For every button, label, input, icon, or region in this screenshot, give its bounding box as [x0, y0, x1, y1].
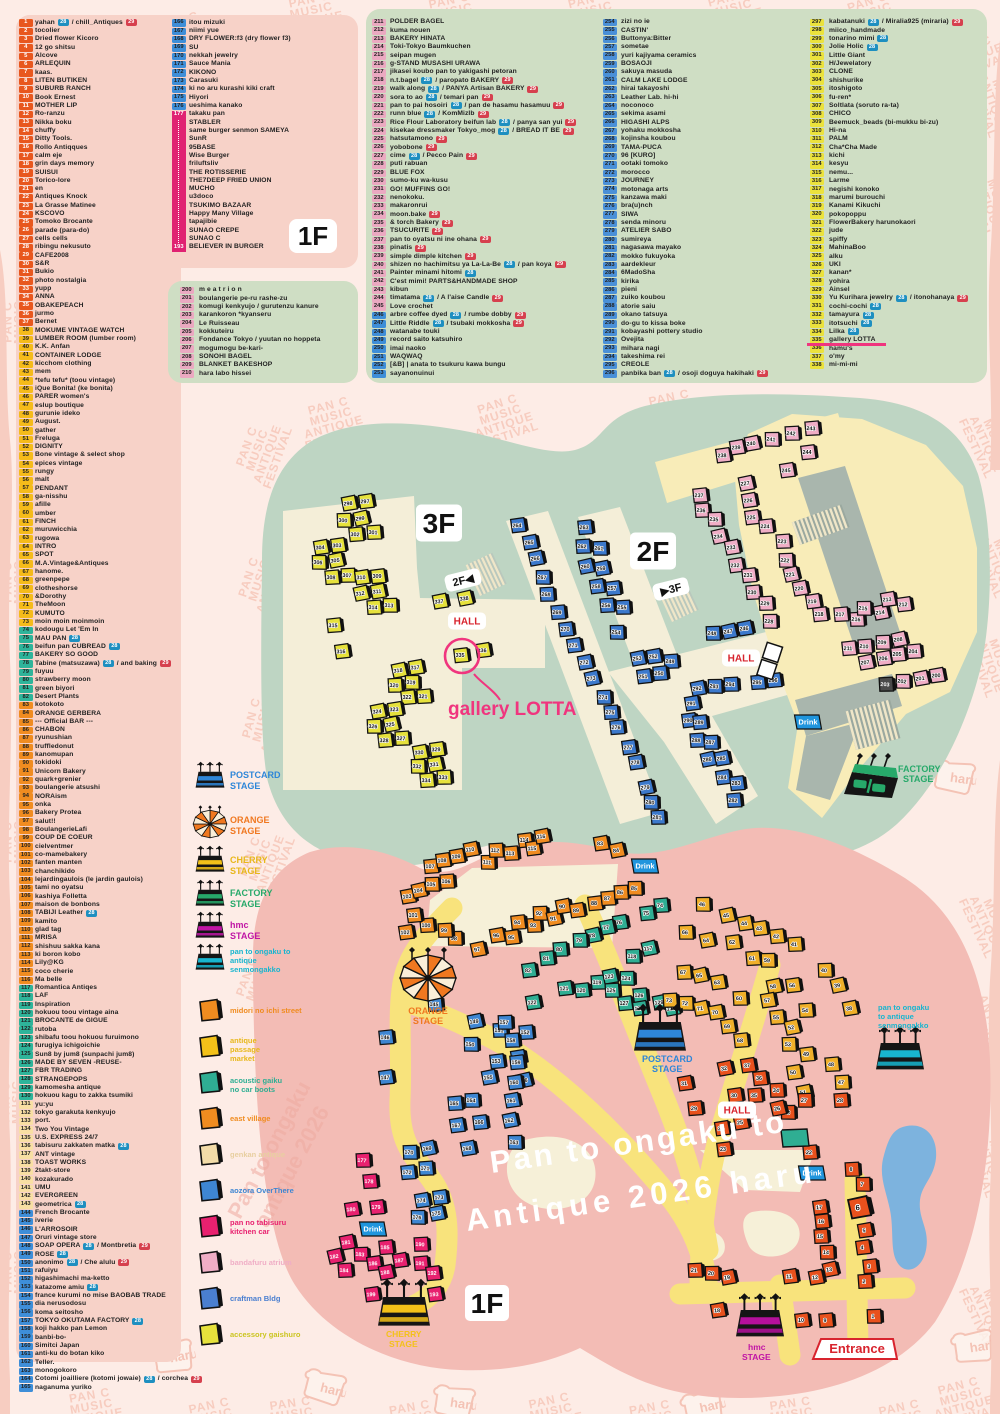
- svg-text:266: 266: [530, 556, 540, 563]
- svg-text:112: 112: [490, 848, 499, 855]
- svg-text:hmc: hmc: [748, 1342, 766, 1352]
- svg-text:66: 66: [682, 930, 689, 937]
- svg-text:8: 8: [849, 1167, 852, 1173]
- svg-text:63: 63: [714, 980, 720, 986]
- svg-text:94: 94: [514, 920, 520, 926]
- svg-text:12: 12: [812, 1275, 818, 1281]
- svg-text:167: 167: [451, 1123, 460, 1129]
- svg-text:19: 19: [724, 1275, 731, 1282]
- svg-text:317: 317: [410, 665, 419, 671]
- svg-text:11: 11: [786, 1274, 792, 1280]
- svg-text:50: 50: [790, 1070, 796, 1076]
- svg-text:158: 158: [506, 1038, 515, 1044]
- svg-text:3: 3: [867, 1264, 870, 1270]
- svg-text:338: 338: [459, 596, 469, 603]
- svg-text:313: 313: [384, 603, 394, 610]
- svg-text:264: 264: [512, 523, 521, 529]
- svg-text:119: 119: [592, 980, 601, 986]
- svg-text:76: 76: [616, 920, 622, 926]
- svg-text:97: 97: [474, 947, 481, 954]
- svg-text:261: 261: [594, 546, 604, 553]
- svg-text:75: 75: [643, 911, 649, 917]
- svg-text:248: 248: [707, 631, 717, 638]
- svg-text:2: 2: [862, 1279, 865, 1285]
- svg-text:13: 13: [826, 1267, 833, 1274]
- svg-text:292: 292: [692, 686, 702, 693]
- svg-text:238: 238: [717, 453, 726, 459]
- svg-text:256: 256: [601, 603, 610, 609]
- svg-text:3F: 3F: [423, 508, 456, 539]
- svg-text:35: 35: [751, 1093, 757, 1099]
- svg-text:224: 224: [760, 524, 769, 530]
- svg-text:251: 251: [638, 674, 647, 680]
- svg-text:260: 260: [580, 564, 590, 571]
- svg-text:83: 83: [597, 841, 603, 847]
- svg-text:64: 64: [703, 938, 709, 944]
- svg-text:168: 168: [462, 1146, 471, 1153]
- svg-text:74: 74: [657, 903, 663, 909]
- svg-text:229: 229: [760, 601, 769, 608]
- svg-text:43: 43: [756, 926, 762, 932]
- svg-text:93: 93: [530, 923, 536, 929]
- svg-text:322: 322: [402, 695, 411, 701]
- svg-text:242: 242: [786, 431, 795, 438]
- svg-text:6: 6: [855, 1203, 860, 1212]
- svg-text:217: 217: [835, 612, 844, 618]
- svg-text:31: 31: [681, 1081, 687, 1087]
- svg-text:211: 211: [844, 646, 853, 652]
- svg-text:40: 40: [821, 968, 828, 975]
- svg-text:277: 277: [623, 745, 632, 751]
- svg-text:326: 326: [368, 724, 378, 731]
- svg-text:82: 82: [525, 968, 531, 974]
- svg-text:275: 275: [605, 710, 614, 716]
- svg-text:215: 215: [858, 606, 868, 613]
- svg-text:249: 249: [665, 659, 674, 665]
- svg-text:49: 49: [803, 1052, 809, 1058]
- svg-text:14: 14: [823, 1250, 830, 1257]
- svg-text:290: 290: [683, 718, 692, 724]
- svg-text:7: 7: [860, 1182, 864, 1188]
- svg-text:28: 28: [837, 1098, 843, 1104]
- svg-text:271: 271: [568, 643, 577, 649]
- svg-text:254: 254: [611, 630, 621, 637]
- svg-text:27: 27: [801, 1098, 808, 1105]
- svg-text:124: 124: [621, 976, 631, 983]
- svg-text:pan to ongaku: pan to ongaku: [878, 1003, 930, 1012]
- svg-text:315: 315: [328, 623, 337, 629]
- svg-text:90: 90: [559, 904, 565, 910]
- svg-text:1F: 1F: [471, 1288, 504, 1319]
- svg-text:297: 297: [360, 499, 369, 505]
- svg-text:302: 302: [350, 532, 359, 538]
- svg-text:204: 204: [908, 649, 917, 655]
- svg-text:207: 207: [860, 660, 869, 667]
- svg-text:245: 245: [781, 468, 790, 474]
- svg-text:STAGE: STAGE: [742, 1352, 771, 1362]
- svg-text:153: 153: [491, 1059, 500, 1065]
- svg-text:38: 38: [846, 1006, 852, 1012]
- svg-text:88: 88: [591, 901, 597, 907]
- svg-text:HALL: HALL: [454, 617, 481, 628]
- svg-text:273: 273: [586, 676, 596, 683]
- svg-text:127: 127: [619, 1001, 628, 1007]
- svg-text:236: 236: [696, 508, 705, 514]
- svg-text:46: 46: [699, 902, 706, 909]
- svg-text:244: 244: [802, 450, 811, 456]
- svg-text:301: 301: [368, 530, 377, 536]
- svg-text:316: 316: [336, 649, 345, 655]
- svg-text:252: 252: [648, 654, 657, 660]
- svg-text:4: 4: [860, 1245, 863, 1251]
- svg-text:305: 305: [330, 558, 340, 565]
- svg-text:284: 284: [717, 775, 726, 781]
- svg-text:58: 58: [770, 984, 777, 991]
- svg-text:47: 47: [838, 1080, 844, 1086]
- svg-text:324: 324: [372, 709, 381, 716]
- svg-text:200: 200: [931, 673, 940, 679]
- svg-text:1: 1: [871, 1314, 875, 1320]
- svg-text:231: 231: [743, 573, 752, 579]
- svg-text:263: 263: [579, 525, 588, 531]
- svg-text:159: 159: [511, 1060, 520, 1066]
- svg-text:285: 285: [716, 756, 725, 763]
- svg-text:225: 225: [746, 515, 755, 521]
- svg-text:227: 227: [740, 481, 750, 488]
- svg-text:53: 53: [785, 1042, 792, 1049]
- svg-text:85: 85: [631, 886, 638, 893]
- svg-text:276: 276: [611, 725, 620, 731]
- svg-text:310: 310: [356, 575, 365, 581]
- svg-text:17: 17: [816, 1205, 822, 1211]
- svg-text:241: 241: [766, 437, 776, 444]
- svg-text:91: 91: [550, 916, 557, 923]
- svg-text:67: 67: [680, 970, 686, 976]
- svg-text:62: 62: [729, 940, 735, 946]
- svg-text:77: 77: [603, 925, 609, 931]
- svg-text:212: 212: [898, 602, 907, 608]
- svg-text:18: 18: [714, 1308, 720, 1314]
- svg-text:92: 92: [536, 911, 543, 918]
- svg-text:118: 118: [627, 954, 636, 961]
- svg-text:87: 87: [604, 896, 610, 902]
- svg-text:95: 95: [508, 935, 514, 941]
- svg-text:262: 262: [577, 544, 586, 550]
- svg-text:80: 80: [556, 947, 562, 953]
- svg-text:270: 270: [560, 627, 569, 633]
- svg-text:senmongakko: senmongakko: [878, 1021, 929, 1030]
- svg-text:300: 300: [338, 518, 348, 525]
- svg-text:265: 265: [524, 540, 533, 546]
- svg-text:335: 335: [455, 653, 464, 659]
- svg-text:216: 216: [851, 617, 860, 624]
- svg-text:309: 309: [372, 574, 381, 580]
- svg-text:293: 293: [709, 684, 719, 691]
- svg-text:2F: 2F: [637, 536, 670, 567]
- svg-text:329: 329: [431, 747, 440, 753]
- svg-text:222: 222: [780, 558, 790, 565]
- svg-text:206: 206: [878, 656, 887, 662]
- svg-text:312: 312: [355, 591, 365, 598]
- svg-text:226: 226: [743, 498, 752, 504]
- svg-text:41: 41: [791, 942, 797, 948]
- svg-text:89: 89: [573, 908, 579, 914]
- svg-text:5: 5: [862, 1228, 865, 1234]
- svg-text:258: 258: [591, 584, 600, 590]
- svg-text:330: 330: [414, 750, 423, 756]
- svg-text:164: 164: [466, 1098, 475, 1105]
- svg-text:307: 307: [342, 573, 351, 580]
- svg-text:96: 96: [493, 933, 499, 939]
- svg-text:9: 9: [823, 1318, 826, 1324]
- svg-text:42: 42: [773, 934, 779, 940]
- svg-text:257: 257: [607, 586, 616, 592]
- svg-text:20: 20: [708, 1271, 715, 1278]
- svg-text:120: 120: [576, 988, 585, 994]
- svg-text:117: 117: [643, 946, 652, 953]
- svg-text:250: 250: [654, 671, 663, 677]
- svg-text:287: 287: [705, 740, 715, 747]
- svg-text:69: 69: [724, 1024, 730, 1030]
- svg-text:109: 109: [451, 854, 460, 860]
- svg-text:32: 32: [721, 1066, 728, 1073]
- svg-text:303: 303: [332, 543, 341, 549]
- svg-text:86: 86: [617, 890, 623, 896]
- svg-text:99: 99: [441, 928, 447, 934]
- svg-text:283: 283: [731, 781, 740, 787]
- svg-text:61: 61: [749, 956, 755, 962]
- svg-text:54: 54: [802, 1008, 808, 1014]
- svg-text:243: 243: [806, 426, 815, 432]
- svg-text:126: 126: [634, 993, 643, 999]
- svg-text:111: 111: [482, 860, 491, 867]
- svg-text:72: 72: [682, 1001, 689, 1008]
- svg-text:79: 79: [576, 938, 583, 945]
- svg-text:291: 291: [686, 701, 695, 707]
- svg-text:246: 246: [739, 626, 748, 633]
- svg-text:34: 34: [773, 1088, 779, 1094]
- svg-text:160: 160: [509, 1080, 518, 1086]
- svg-text:157: 157: [499, 1020, 509, 1027]
- svg-text:308: 308: [326, 575, 335, 581]
- svg-text:337: 337: [434, 599, 443, 606]
- svg-text:52: 52: [788, 1025, 795, 1032]
- svg-text:209: 209: [877, 640, 887, 647]
- svg-text:123: 123: [604, 974, 614, 981]
- svg-text:328: 328: [379, 738, 388, 744]
- svg-text:323: 323: [389, 707, 398, 713]
- svg-text:294: 294: [725, 682, 734, 689]
- svg-text:214: 214: [875, 610, 885, 617]
- svg-text:240: 240: [746, 441, 756, 448]
- svg-text:29: 29: [691, 1106, 697, 1112]
- svg-text:73: 73: [666, 998, 672, 1004]
- svg-text:311: 311: [372, 589, 381, 596]
- svg-text:327: 327: [396, 736, 405, 742]
- svg-text:gallery LOTTA: gallery LOTTA: [448, 699, 577, 720]
- svg-text:268: 268: [541, 592, 550, 599]
- svg-text:202: 202: [897, 679, 907, 686]
- svg-text:81: 81: [543, 956, 549, 962]
- svg-text:56: 56: [789, 983, 795, 989]
- svg-text:205: 205: [892, 652, 901, 658]
- svg-text:223: 223: [777, 539, 786, 545]
- svg-text:325: 325: [385, 722, 395, 729]
- svg-text:44: 44: [741, 921, 747, 927]
- svg-text:Entrance: Entrance: [829, 1341, 885, 1356]
- svg-text:30: 30: [731, 1093, 737, 1099]
- svg-text:267: 267: [537, 575, 547, 582]
- svg-text:STAGE: STAGE: [903, 774, 933, 784]
- svg-text:10: 10: [798, 1318, 804, 1324]
- svg-text:121: 121: [559, 986, 568, 992]
- svg-text:314: 314: [368, 605, 377, 611]
- svg-text:320: 320: [389, 683, 398, 690]
- svg-text:210: 210: [859, 644, 868, 650]
- svg-text:269: 269: [552, 610, 561, 616]
- svg-text:150: 150: [465, 1042, 475, 1049]
- svg-text:280: 280: [645, 800, 655, 807]
- svg-text:281: 281: [652, 815, 661, 822]
- svg-text:106: 106: [441, 879, 450, 885]
- svg-text:152: 152: [520, 1030, 529, 1036]
- svg-text:FACTORY: FACTORY: [898, 764, 941, 774]
- svg-text:71: 71: [697, 1006, 704, 1013]
- svg-text:Drink: Drink: [798, 718, 818, 727]
- svg-text:299: 299: [355, 516, 365, 523]
- svg-text:279: 279: [640, 785, 650, 792]
- svg-text:36: 36: [756, 1076, 762, 1082]
- svg-text:239: 239: [731, 445, 740, 451]
- svg-text:HALL: HALL: [728, 654, 755, 665]
- svg-text:289: 289: [694, 720, 703, 726]
- svg-text:122: 122: [527, 1000, 536, 1006]
- svg-text:116: 116: [536, 834, 545, 841]
- svg-text:125: 125: [606, 988, 615, 995]
- svg-text:218: 218: [814, 612, 823, 618]
- svg-text:230: 230: [747, 590, 756, 596]
- svg-text:STAGE: STAGE: [652, 1064, 682, 1074]
- svg-text:213: 213: [882, 597, 891, 603]
- svg-text:201: 201: [915, 676, 925, 683]
- svg-text:155: 155: [483, 1075, 492, 1082]
- svg-text:247: 247: [723, 629, 733, 636]
- svg-text:113: 113: [505, 851, 514, 857]
- svg-text:21: 21: [691, 1268, 697, 1274]
- svg-text:321: 321: [418, 694, 427, 700]
- svg-text:70: 70: [712, 1010, 718, 1016]
- svg-text:304: 304: [315, 545, 324, 551]
- svg-text:149: 149: [469, 1019, 479, 1026]
- svg-text:Drink: Drink: [635, 862, 655, 871]
- svg-text:233: 233: [726, 545, 735, 552]
- svg-text:162: 162: [504, 1118, 514, 1125]
- svg-text:16: 16: [818, 1219, 824, 1225]
- svg-text:37: 37: [744, 1063, 750, 1069]
- svg-text:286: 286: [702, 757, 712, 764]
- svg-text:59: 59: [764, 958, 771, 965]
- svg-text:to antique: to antique: [878, 1012, 914, 1021]
- svg-text:232: 232: [730, 563, 739, 569]
- svg-text:48: 48: [828, 1062, 834, 1068]
- svg-text:272: 272: [579, 660, 588, 667]
- svg-text:278: 278: [630, 760, 639, 766]
- svg-text:57: 57: [764, 998, 770, 1004]
- svg-text:235: 235: [709, 517, 719, 524]
- svg-text:45: 45: [723, 913, 730, 920]
- svg-text:220: 220: [794, 586, 803, 593]
- svg-text:253: 253: [632, 656, 642, 663]
- svg-text:295: 295: [752, 680, 761, 686]
- svg-text:219: 219: [807, 599, 816, 605]
- svg-text:259: 259: [596, 566, 605, 573]
- svg-text:165: 165: [449, 1101, 458, 1107]
- svg-text:306: 306: [313, 560, 323, 567]
- svg-text:288: 288: [691, 738, 700, 744]
- svg-text:55: 55: [773, 1015, 779, 1021]
- svg-text:68: 68: [737, 1038, 743, 1044]
- svg-text:39: 39: [834, 983, 841, 990]
- svg-text:234: 234: [713, 534, 723, 541]
- svg-text:237: 237: [694, 493, 703, 499]
- svg-text:319: 319: [406, 680, 416, 687]
- svg-text:282: 282: [728, 798, 737, 804]
- svg-text:208: 208: [893, 637, 903, 644]
- svg-text:274: 274: [598, 695, 608, 702]
- svg-text:POSTCARD: POSTCARD: [642, 1054, 693, 1064]
- svg-text:255: 255: [617, 605, 626, 612]
- svg-text:166: 166: [474, 1120, 483, 1126]
- svg-text:65: 65: [696, 973, 703, 980]
- svg-text:318: 318: [393, 668, 403, 675]
- svg-text:221: 221: [785, 572, 795, 579]
- svg-text:60: 60: [736, 996, 742, 1002]
- svg-text:110: 110: [465, 847, 474, 854]
- svg-text:203: 203: [880, 682, 889, 689]
- svg-text:84: 84: [613, 848, 620, 855]
- svg-text:228: 228: [764, 619, 774, 626]
- svg-text:15: 15: [817, 1234, 823, 1240]
- svg-text:298: 298: [343, 501, 352, 508]
- svg-text:161: 161: [506, 1098, 515, 1104]
- svg-text:23: 23: [720, 1147, 726, 1153]
- svg-text:115: 115: [528, 846, 537, 852]
